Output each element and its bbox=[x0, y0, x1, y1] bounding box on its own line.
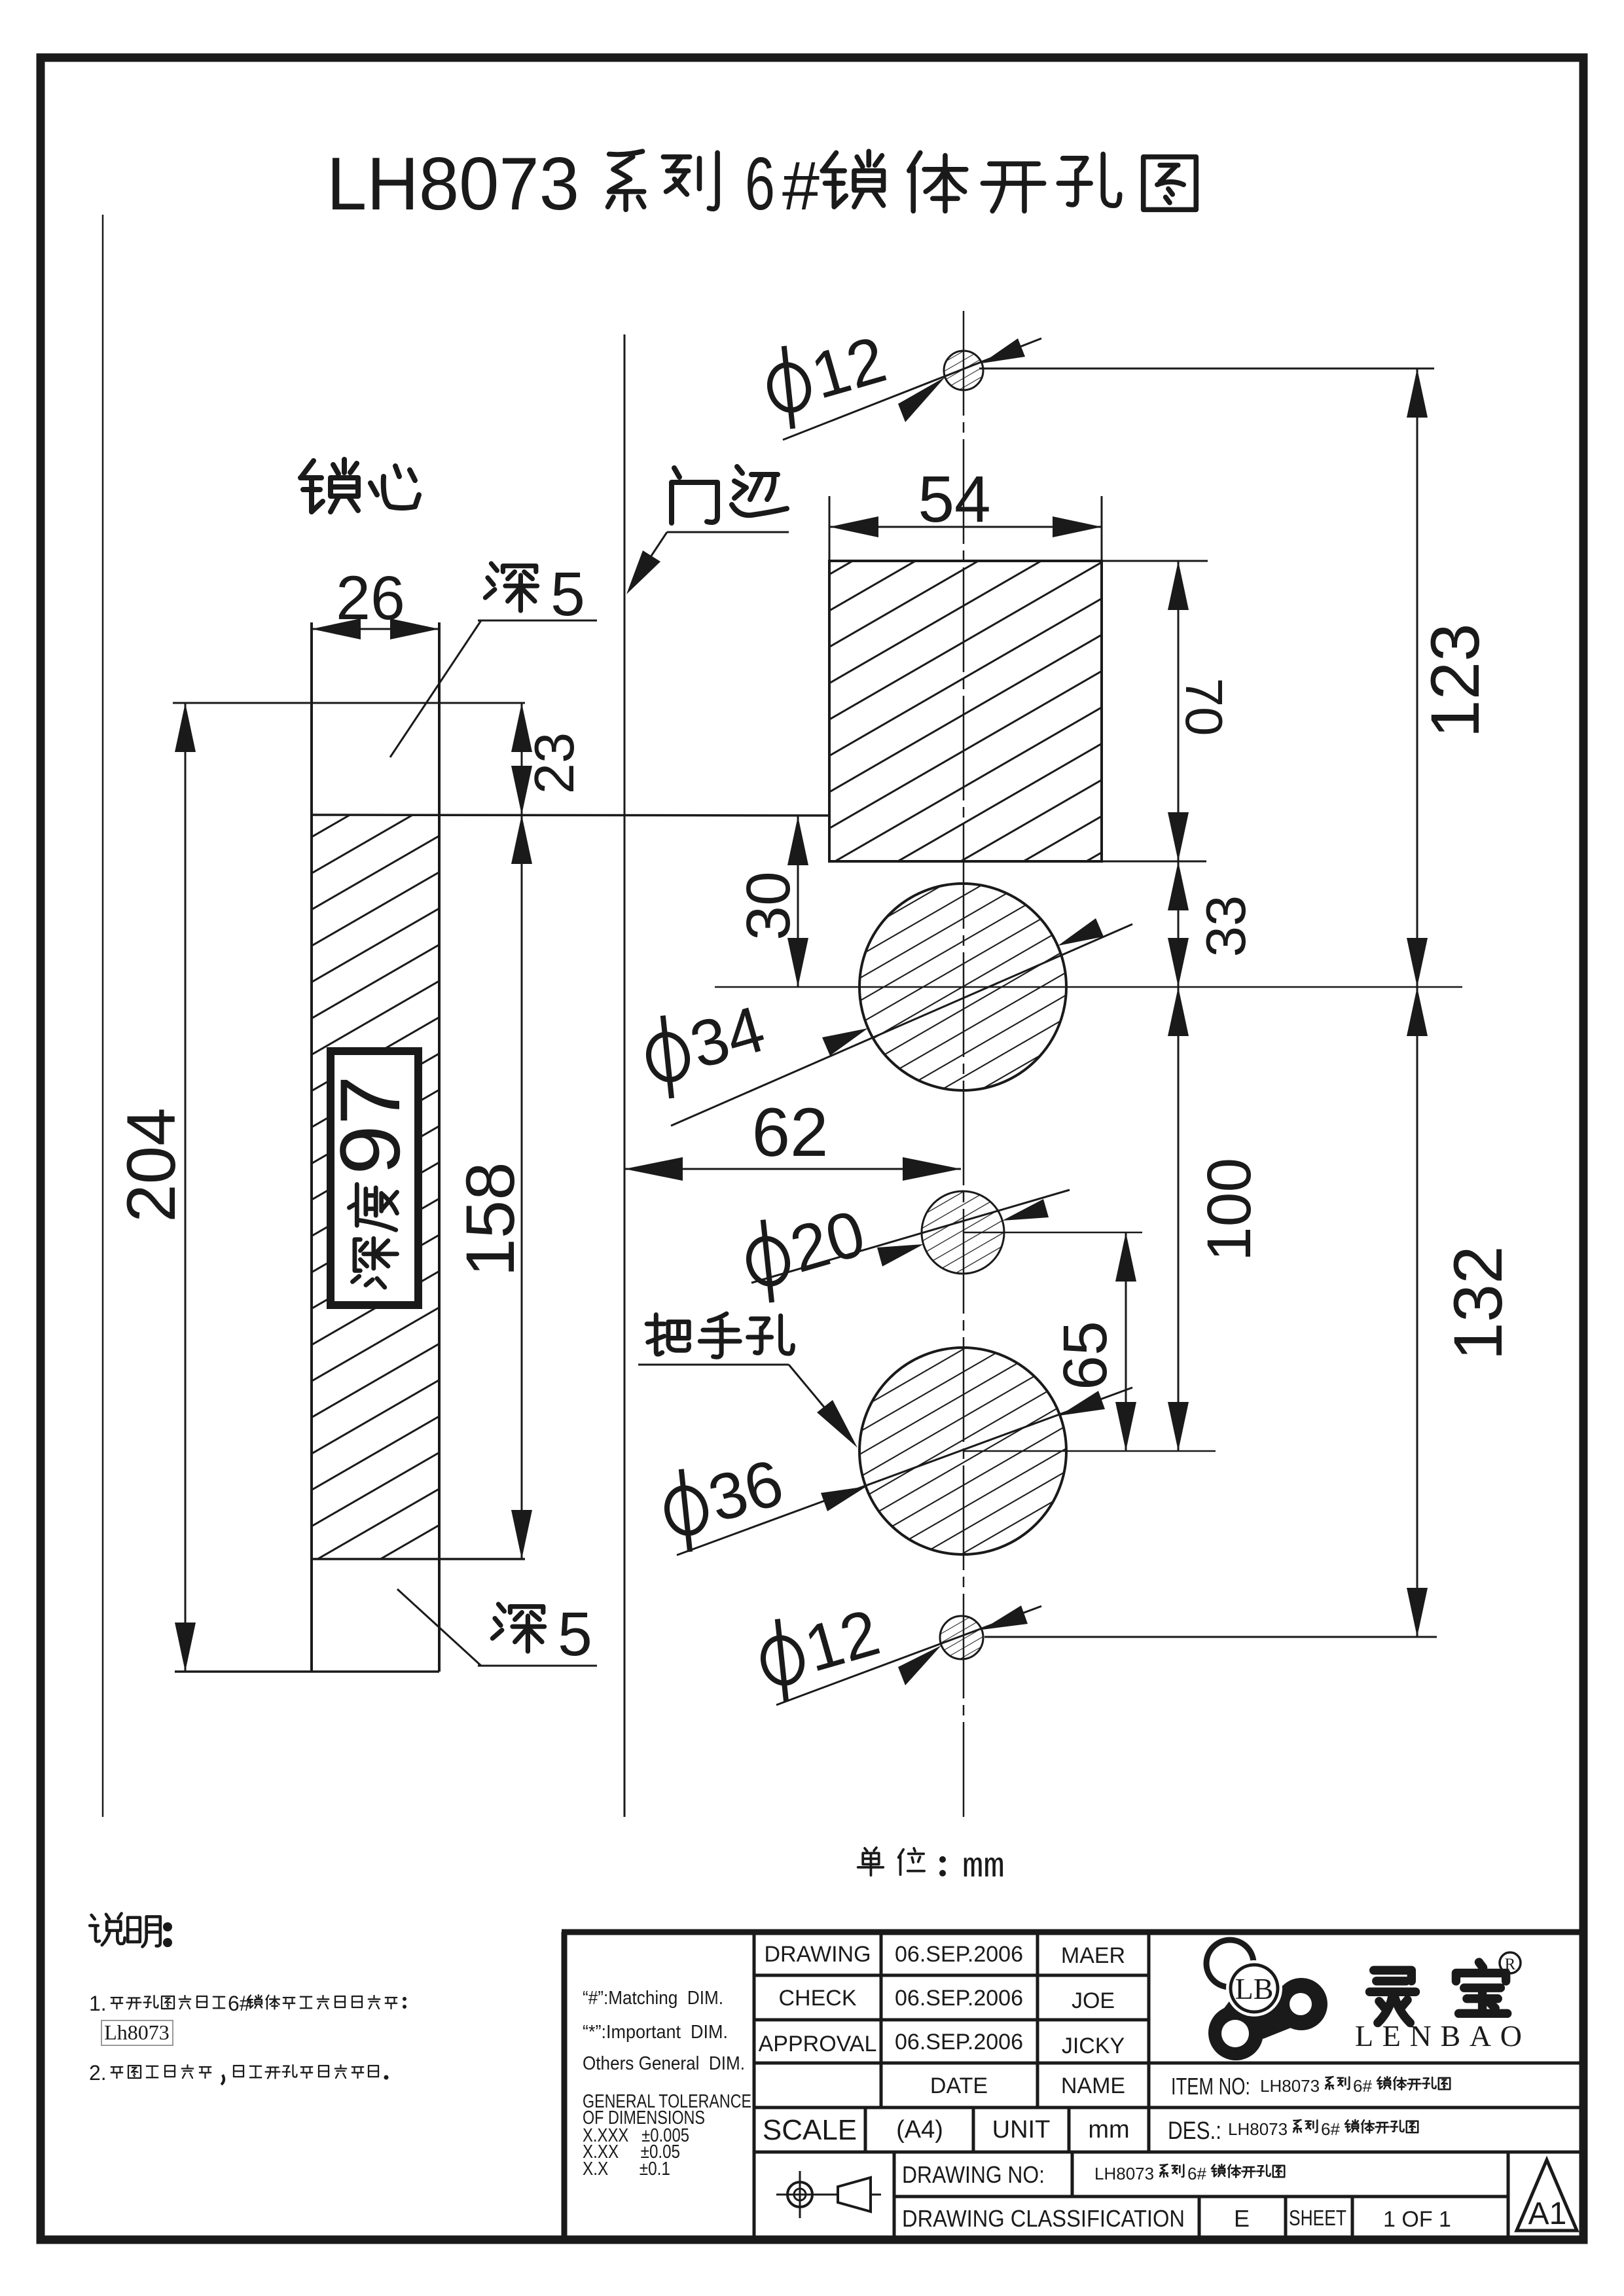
svg-text:5: 5 bbox=[550, 560, 585, 629]
svg-text:CHECK: CHECK bbox=[778, 1986, 856, 2011]
svg-text:E: E bbox=[1234, 2205, 1250, 2232]
svg-text:DES.:: DES.: bbox=[1168, 2117, 1221, 2145]
svg-text:23: 23 bbox=[524, 732, 586, 795]
svg-text:“#”:Matching DIM.: “#”:Matching DIM. bbox=[583, 1988, 723, 2009]
svg-text:A1: A1 bbox=[1528, 2197, 1567, 2231]
svg-text:LH8073: LH8073 bbox=[327, 143, 579, 226]
svg-text:NAME: NAME bbox=[1061, 2073, 1125, 2098]
svg-text:2.: 2. bbox=[89, 2061, 107, 2085]
svg-text:100: 100 bbox=[1195, 1158, 1264, 1262]
svg-text:DRAWING NO:: DRAWING NO: bbox=[902, 2161, 1045, 2188]
svg-text:DRAWING CLASSIFICATION: DRAWING CLASSIFICATION bbox=[902, 2205, 1185, 2232]
svg-text:1 OF 1: 1 OF 1 bbox=[1383, 2207, 1451, 2232]
svg-text:26: 26 bbox=[336, 564, 405, 633]
svg-text:123: 123 bbox=[1417, 623, 1494, 738]
svg-text:“*”:Important DIM.: “*”:Important DIM. bbox=[583, 2022, 728, 2043]
svg-text:62: 62 bbox=[752, 1094, 829, 1171]
svg-text:ITEM NO:: ITEM NO: bbox=[1171, 2073, 1250, 2100]
svg-text:204: 204 bbox=[113, 1107, 190, 1222]
svg-text:LH8073: LH8073 bbox=[1228, 2119, 1288, 2139]
svg-text:MAER: MAER bbox=[1061, 1943, 1125, 1968]
svg-text:33: 33 bbox=[1195, 895, 1257, 958]
svg-text:mm: mm bbox=[1088, 2116, 1129, 2144]
svg-text:JOE: JOE bbox=[1072, 1988, 1115, 2013]
svg-text:1.: 1. bbox=[89, 1992, 107, 2015]
svg-text:132: 132 bbox=[1440, 1246, 1517, 1360]
svg-text:65: 65 bbox=[1051, 1321, 1120, 1390]
svg-text:30: 30 bbox=[734, 871, 803, 941]
svg-text:APPROVAL: APPROVAL bbox=[759, 2032, 877, 2056]
svg-text:6#: 6# bbox=[1187, 2164, 1206, 2183]
svg-text:LH8073: LH8073 bbox=[1094, 2164, 1154, 2183]
svg-text:LB: LB bbox=[1235, 1972, 1274, 2005]
svg-text:5: 5 bbox=[558, 1600, 592, 1669]
svg-text:06.SEP.2006: 06.SEP.2006 bbox=[895, 2030, 1023, 2054]
svg-text:R: R bbox=[1505, 1956, 1516, 1973]
svg-text:DRAWING: DRAWING bbox=[764, 1942, 871, 1967]
svg-text:UNIT: UNIT bbox=[992, 2116, 1051, 2144]
svg-text:(A4): (A4) bbox=[896, 2116, 943, 2144]
svg-text:mm: mm bbox=[962, 1848, 1005, 1888]
svg-text:JICKY: JICKY bbox=[1062, 2034, 1125, 2058]
svg-text:06.SEP.2006: 06.SEP.2006 bbox=[895, 1986, 1023, 2011]
svg-text:06.SEP.2006: 06.SEP.2006 bbox=[895, 1942, 1023, 1967]
svg-text:Lh8073: Lh8073 bbox=[104, 2020, 170, 2044]
svg-text:6: 6 bbox=[745, 143, 775, 226]
svg-text:Others General DIM.: Others General DIM. bbox=[583, 2053, 745, 2074]
svg-text:DATE: DATE bbox=[930, 2073, 988, 2098]
svg-text:LH8073: LH8073 bbox=[1260, 2076, 1320, 2096]
svg-text:6#: 6# bbox=[1321, 2119, 1340, 2139]
svg-text:#: # bbox=[782, 148, 820, 224]
svg-text:SHEET: SHEET bbox=[1289, 2206, 1346, 2230]
svg-text:54: 54 bbox=[918, 463, 990, 536]
svg-text:158: 158 bbox=[452, 1162, 529, 1276]
svg-text:6#: 6# bbox=[1353, 2076, 1372, 2096]
svg-text:6#: 6# bbox=[228, 1992, 251, 2015]
svg-text:70: 70 bbox=[1175, 678, 1233, 736]
svg-text:97: 97 bbox=[322, 1075, 418, 1175]
svg-text:SCALE: SCALE bbox=[763, 2114, 857, 2146]
svg-text:X.X ±0.1: X.X ±0.1 bbox=[583, 2159, 670, 2179]
